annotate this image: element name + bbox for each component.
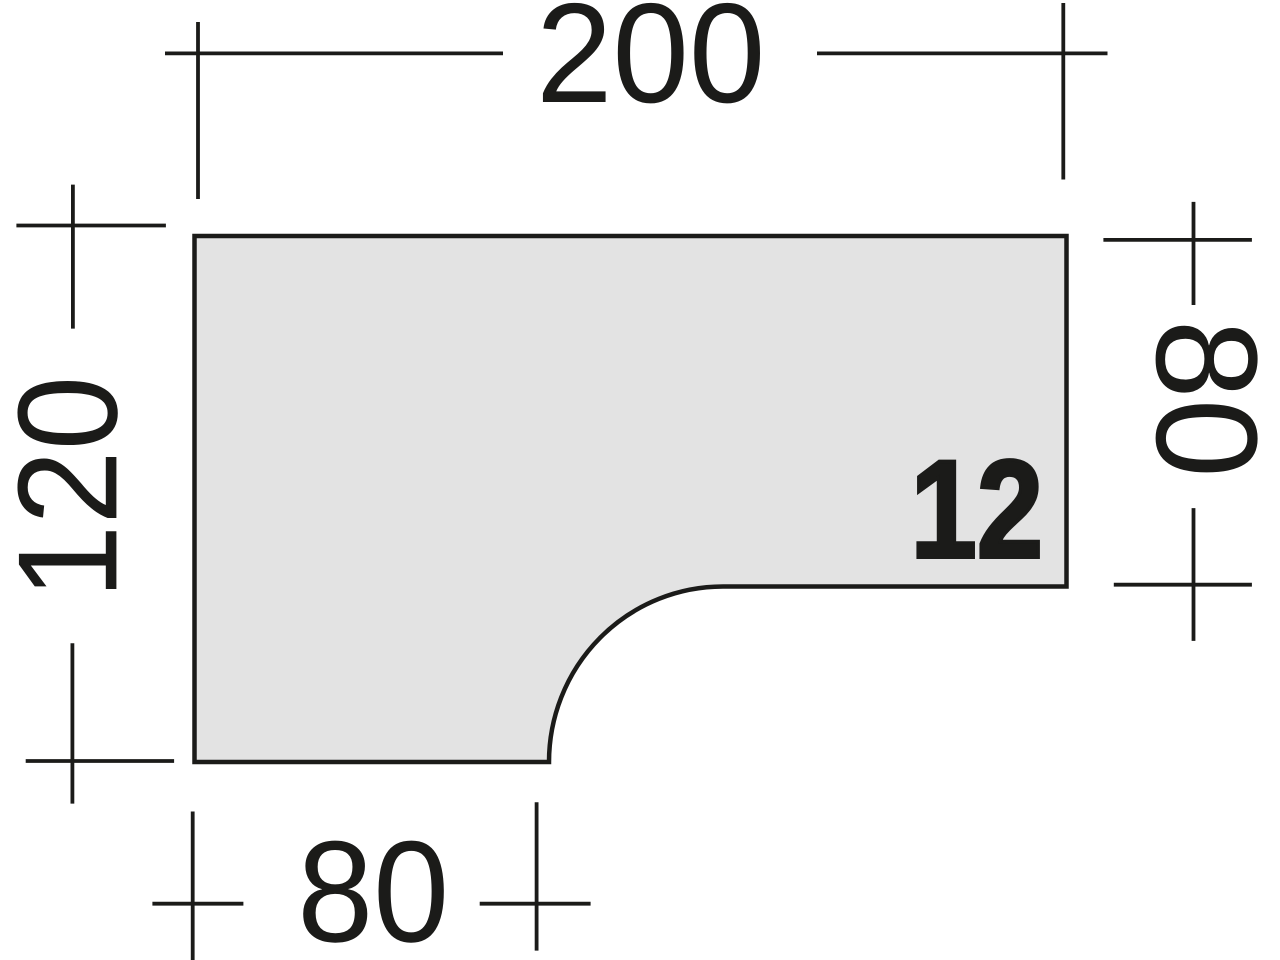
svg-text:120: 120 xyxy=(0,376,147,599)
svg-text:80: 80 xyxy=(1126,320,1280,478)
svg-text:80: 80 xyxy=(297,811,449,960)
svg-text:12: 12 xyxy=(910,433,1043,588)
svg-text:200: 200 xyxy=(536,0,765,132)
